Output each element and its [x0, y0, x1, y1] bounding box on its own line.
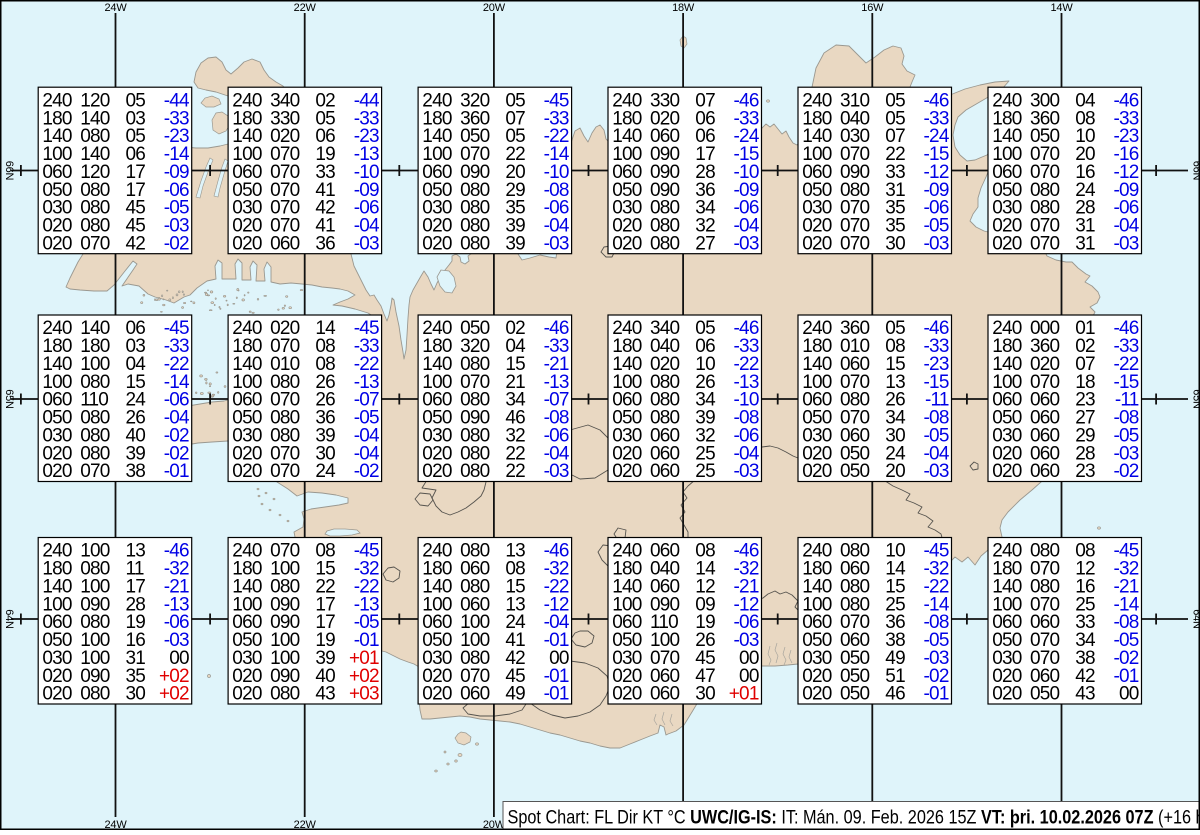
svg-text:18W: 18W — [672, 2, 695, 14]
svg-text:43: 43 — [1075, 684, 1095, 705]
svg-text:020: 020 — [422, 461, 452, 482]
svg-text:-02: -02 — [354, 461, 379, 482]
svg-text:20W: 20W — [483, 2, 506, 14]
svg-text:070: 070 — [270, 461, 300, 482]
svg-text:020: 020 — [232, 233, 262, 254]
svg-text:38: 38 — [126, 461, 146, 482]
svg-text:24W: 24W — [104, 819, 127, 830]
svg-text:-03: -03 — [544, 461, 569, 482]
svg-text:070: 070 — [80, 233, 110, 254]
svg-text:Spot Chart: FL Dir KT °C UWC/I: Spot Chart: FL Dir KT °C UWC/IG-IS: IT: … — [508, 806, 1200, 827]
svg-text:30: 30 — [695, 684, 715, 705]
svg-text:060: 060 — [650, 684, 680, 705]
svg-text:49: 49 — [505, 684, 525, 705]
svg-text:020: 020 — [612, 233, 642, 254]
svg-text:060: 060 — [1030, 461, 1060, 482]
svg-text:050: 050 — [840, 684, 870, 705]
svg-text:27: 27 — [695, 233, 715, 254]
svg-text:-01: -01 — [544, 684, 569, 705]
svg-text:-03: -03 — [354, 233, 379, 254]
svg-text:-02: -02 — [1113, 461, 1138, 482]
svg-text:-01: -01 — [164, 461, 189, 482]
svg-text:25: 25 — [695, 461, 715, 482]
svg-text:-03: -03 — [1113, 233, 1138, 254]
svg-text:070: 070 — [840, 233, 870, 254]
svg-text:30: 30 — [126, 684, 146, 705]
svg-text:020: 020 — [42, 233, 72, 254]
svg-text:14W: 14W — [1050, 2, 1073, 14]
svg-text:-03: -03 — [544, 233, 569, 254]
svg-text:20: 20 — [885, 461, 905, 482]
svg-text:22: 22 — [505, 461, 525, 482]
svg-text:-03: -03 — [734, 461, 759, 482]
svg-text:080: 080 — [650, 233, 680, 254]
svg-text:050: 050 — [1030, 684, 1060, 705]
svg-text:020: 020 — [992, 233, 1022, 254]
svg-text:-03: -03 — [924, 461, 949, 482]
svg-text:020: 020 — [802, 461, 832, 482]
svg-text:020: 020 — [42, 461, 72, 482]
svg-text:020: 020 — [42, 684, 72, 705]
svg-text:080: 080 — [460, 461, 490, 482]
svg-text:020: 020 — [612, 684, 642, 705]
svg-text:020: 020 — [612, 461, 642, 482]
svg-text:66N: 66N — [3, 161, 15, 181]
svg-text:24W: 24W — [104, 2, 127, 14]
svg-text:22W: 22W — [294, 819, 317, 830]
svg-text:+01: +01 — [729, 684, 759, 705]
svg-text:070: 070 — [1030, 233, 1060, 254]
svg-text:020: 020 — [232, 461, 262, 482]
svg-text:24: 24 — [315, 461, 336, 482]
svg-text:020: 020 — [802, 684, 832, 705]
svg-text:020: 020 — [992, 684, 1022, 705]
svg-text:050: 050 — [840, 461, 870, 482]
svg-text:36: 36 — [315, 233, 335, 254]
svg-text:-02: -02 — [164, 233, 189, 254]
svg-text:42: 42 — [126, 233, 146, 254]
svg-text:020: 020 — [422, 684, 452, 705]
svg-text:+03: +03 — [349, 684, 379, 705]
svg-text:+02: +02 — [159, 684, 189, 705]
svg-text:020: 020 — [422, 233, 452, 254]
svg-text:65N: 65N — [3, 389, 15, 409]
svg-text:020: 020 — [802, 233, 832, 254]
svg-text:30: 30 — [885, 233, 905, 254]
svg-text:060: 060 — [270, 233, 300, 254]
svg-text:20W: 20W — [483, 819, 506, 830]
svg-text:020: 020 — [232, 684, 262, 705]
svg-text:080: 080 — [80, 684, 110, 705]
svg-text:-03: -03 — [734, 233, 759, 254]
svg-text:31: 31 — [1075, 233, 1095, 254]
svg-text:64N: 64N — [3, 609, 15, 629]
svg-text:080: 080 — [460, 233, 490, 254]
svg-text:060: 060 — [460, 684, 490, 705]
svg-text:070: 070 — [80, 461, 110, 482]
svg-text:080: 080 — [270, 684, 300, 705]
svg-text:-01: -01 — [924, 684, 949, 705]
svg-text:16W: 16W — [861, 2, 884, 14]
svg-text:060: 060 — [650, 461, 680, 482]
svg-text:46: 46 — [885, 684, 905, 705]
svg-text:39: 39 — [505, 233, 525, 254]
svg-text:-03: -03 — [924, 233, 949, 254]
svg-text:22W: 22W — [294, 2, 317, 14]
svg-text:23: 23 — [1075, 461, 1095, 482]
svg-text:43: 43 — [315, 684, 335, 705]
svg-text:00: 00 — [1119, 684, 1139, 705]
svg-text:020: 020 — [992, 461, 1022, 482]
